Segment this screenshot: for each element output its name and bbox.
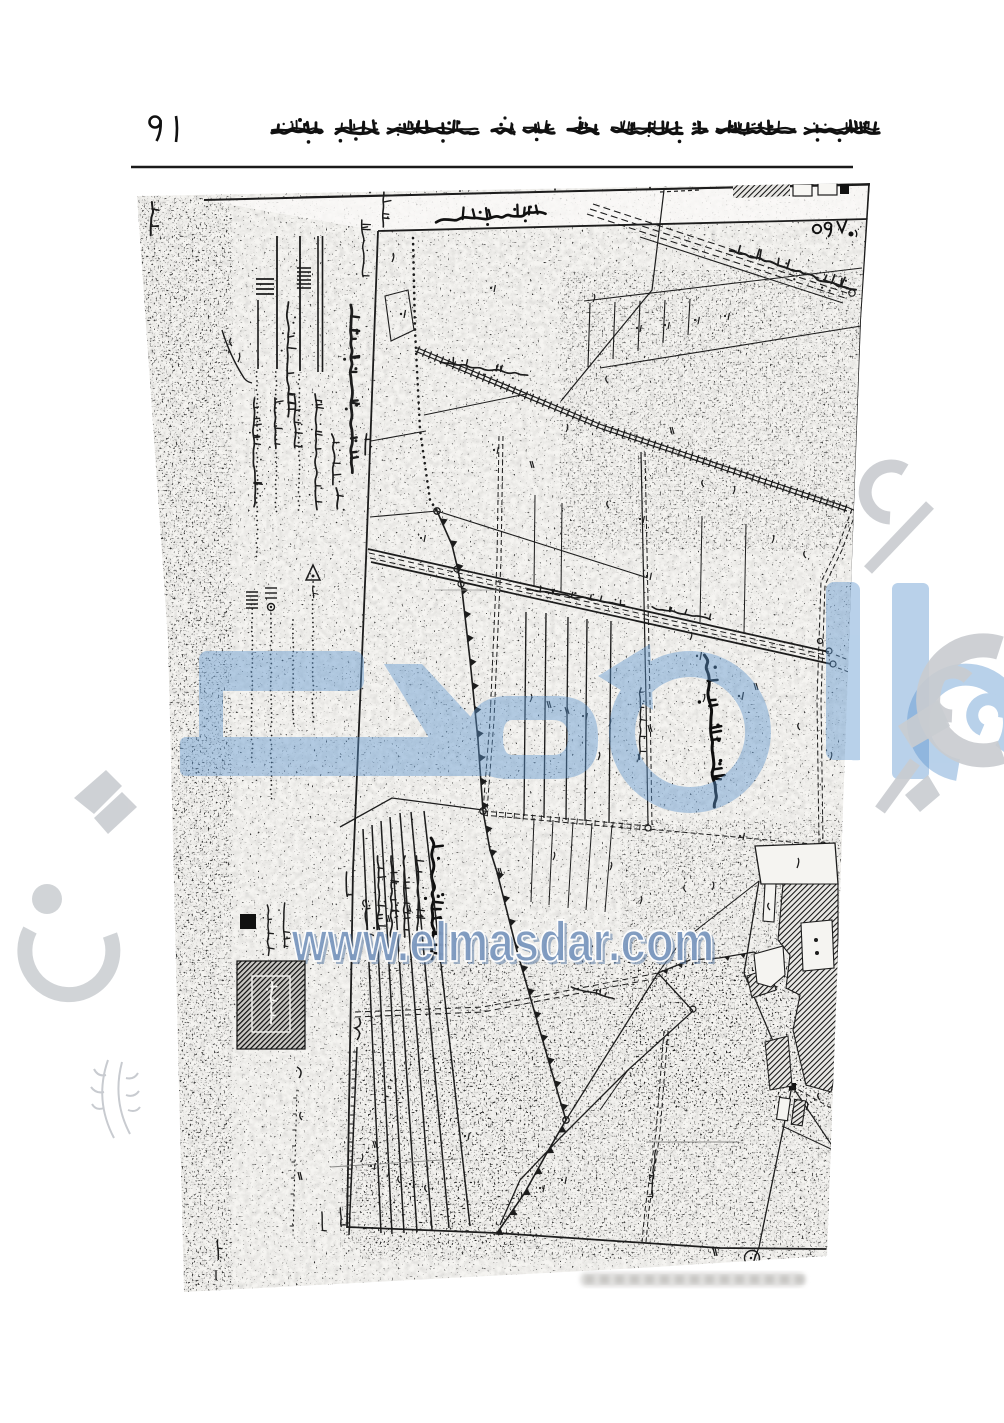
svg-text:www.elmasdar.com: www.elmasdar.com xyxy=(291,911,715,973)
